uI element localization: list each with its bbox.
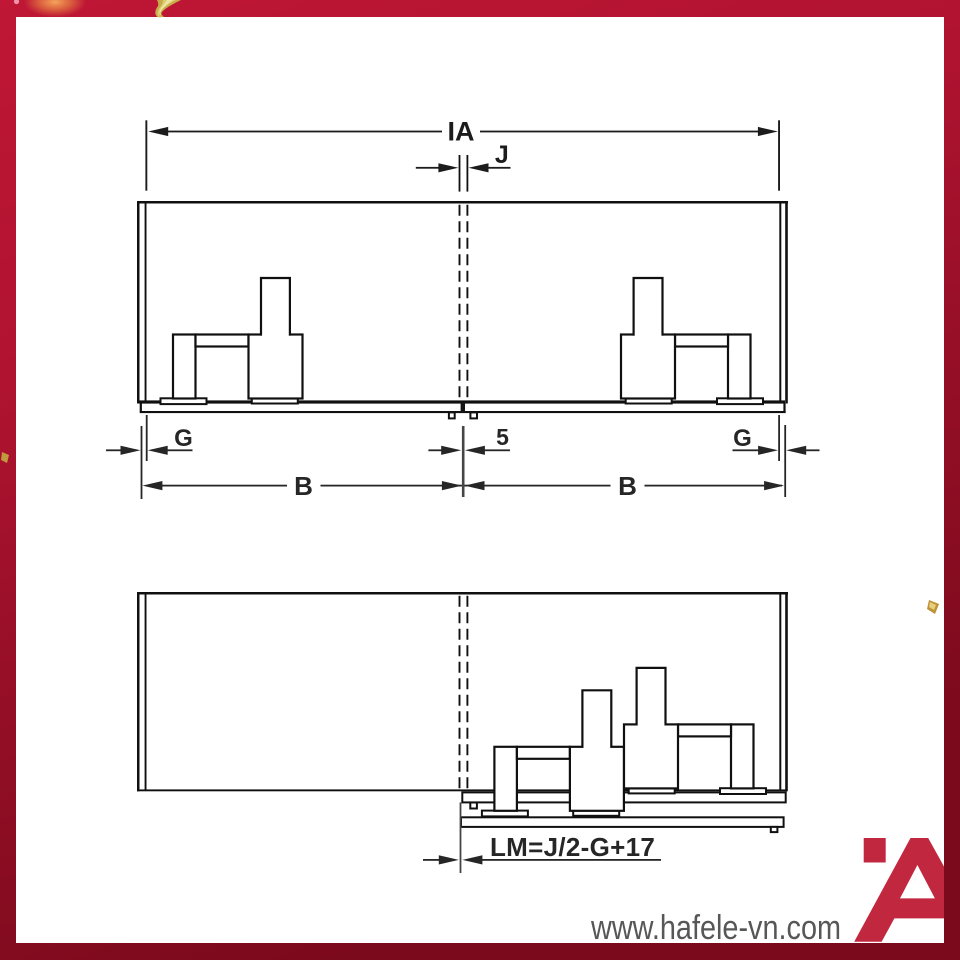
svg-text:G: G — [174, 425, 193, 452]
svg-text:B: B — [294, 471, 313, 501]
svg-text:www.hafele-vn.com: www.hafele-vn.com — [590, 909, 841, 947]
svg-text:B: B — [618, 471, 637, 501]
svg-text:J: J — [495, 141, 509, 169]
svg-text:IA: IA — [448, 117, 475, 147]
svg-text:5: 5 — [496, 424, 509, 450]
svg-text:G: G — [733, 425, 752, 452]
svg-text:LM=J/2-G+17: LM=J/2-G+17 — [490, 832, 655, 862]
